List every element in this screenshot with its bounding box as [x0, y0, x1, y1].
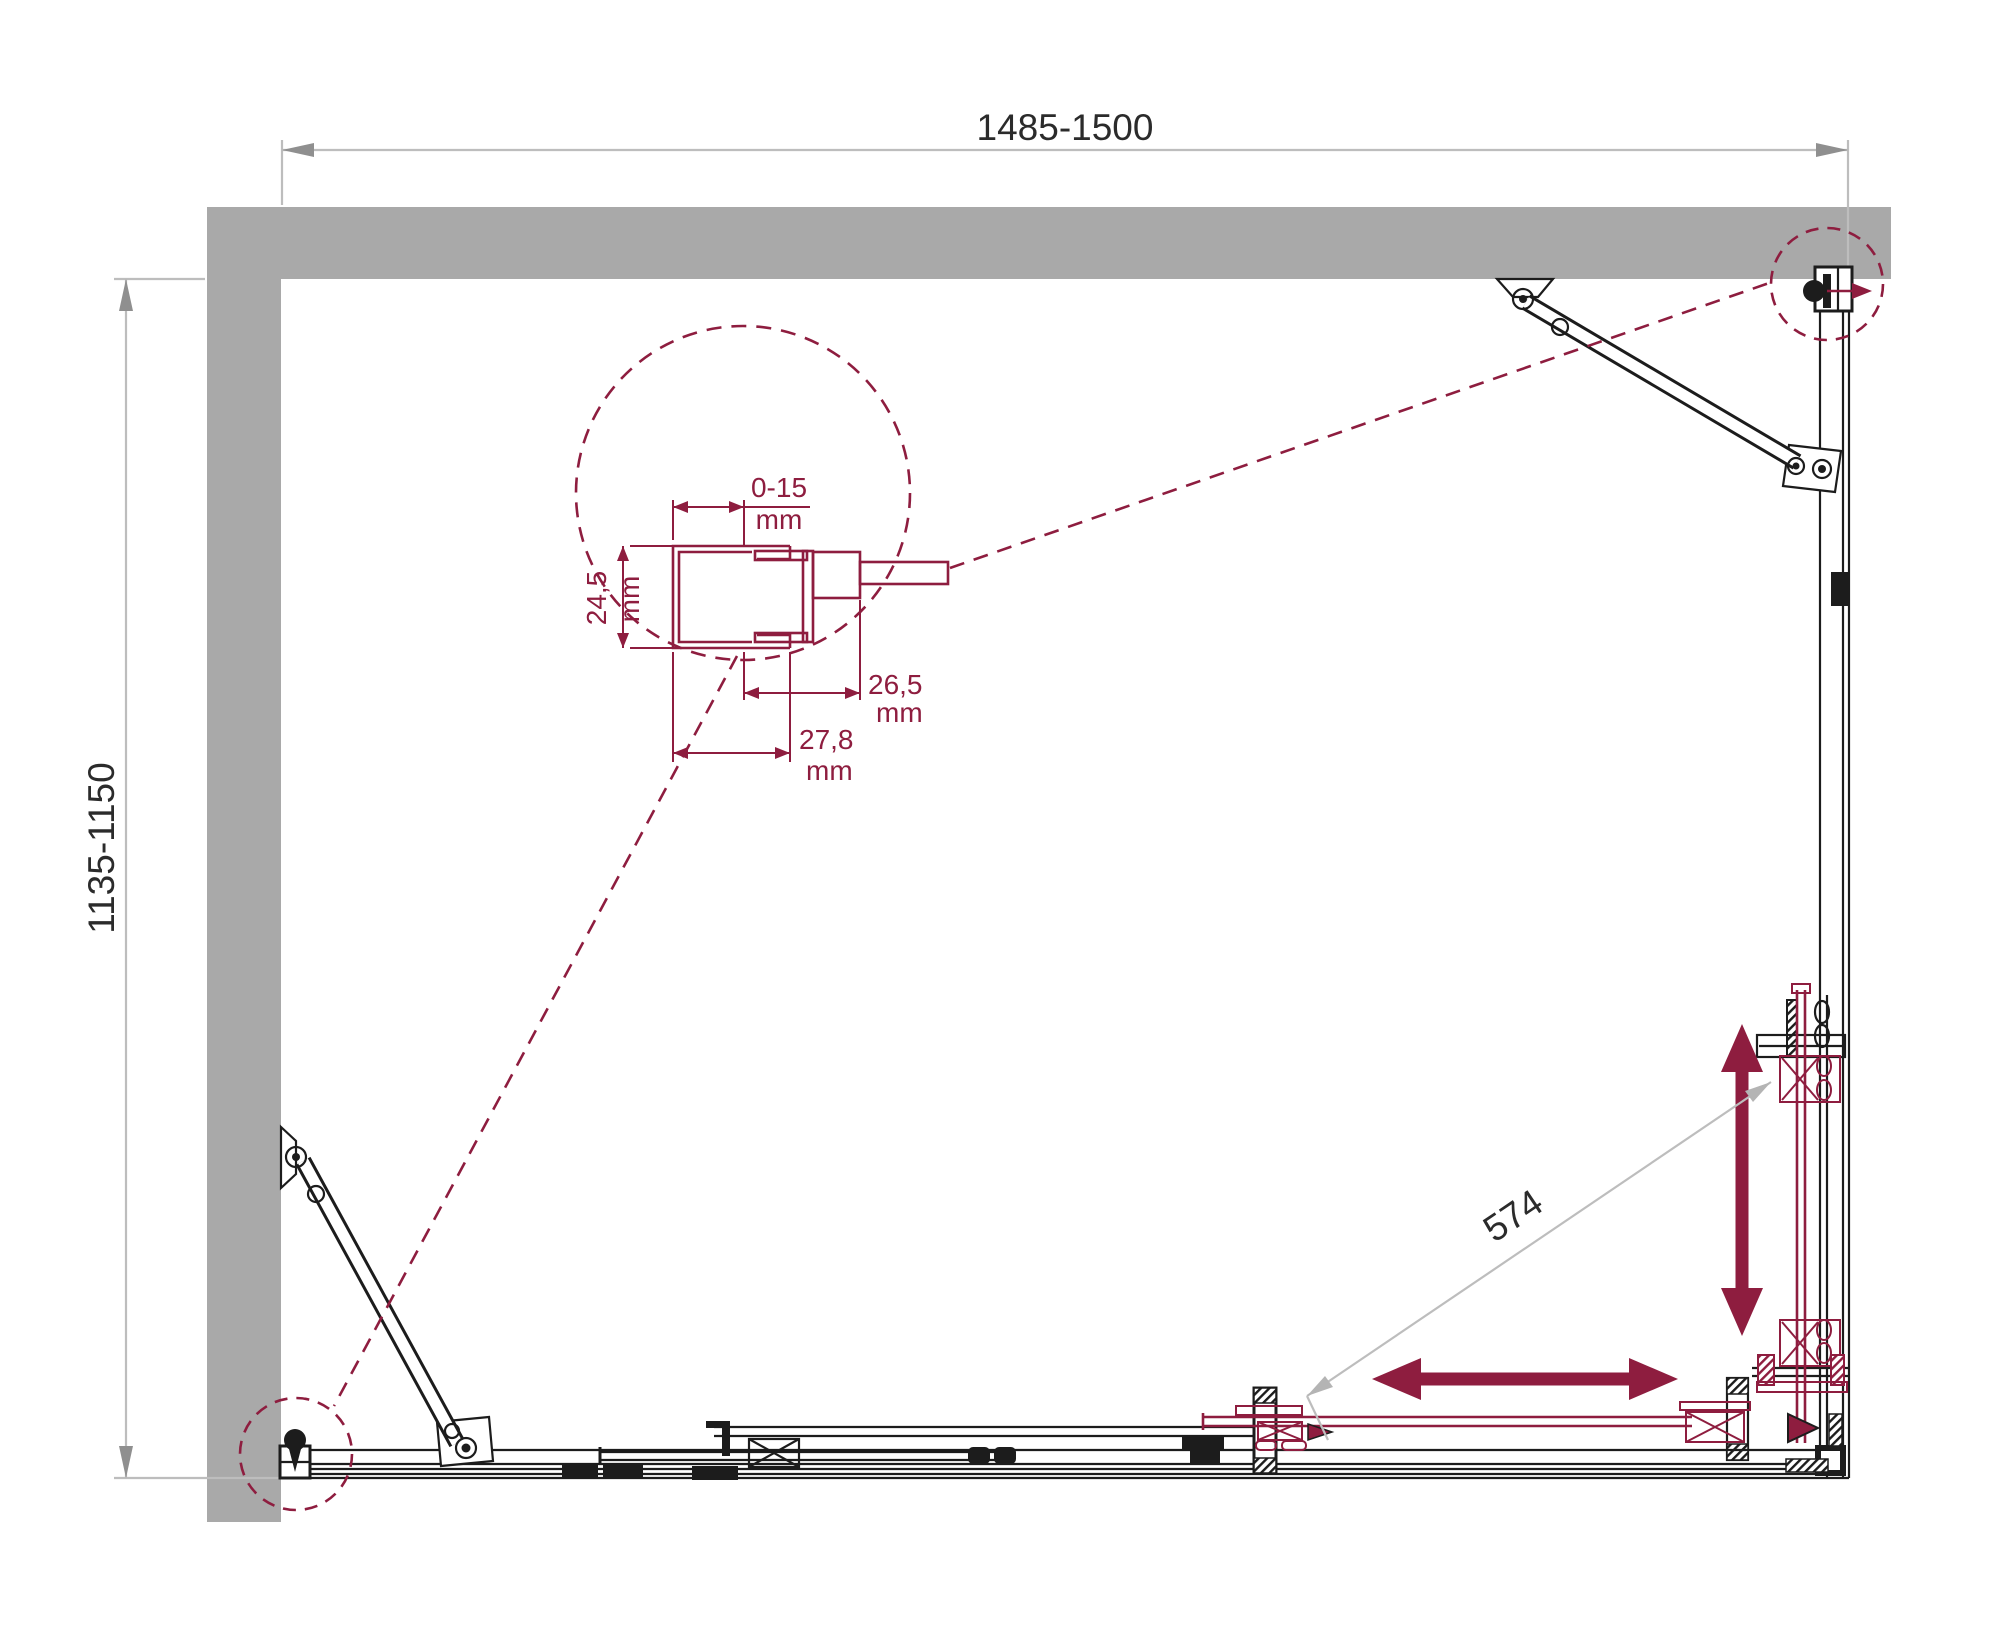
- door-end-bracket: [706, 1421, 730, 1428]
- main-carriage-hatch: [1254, 1388, 1276, 1403]
- roller-bar-black: [1787, 1000, 1797, 1056]
- direction-arrows: [1372, 1024, 1763, 1400]
- glass-clamp-right: [1831, 572, 1848, 606]
- corner-hatch-horizontal: [1786, 1459, 1828, 1472]
- detail-profile-depth-value: 24,5: [581, 571, 612, 626]
- detail-inner-box: [813, 552, 860, 598]
- maroon-door-guide-tip: [1788, 1414, 1818, 1442]
- width-dimension-label: 1485-1500: [977, 107, 1154, 148]
- wall-bracket-plate: [1497, 279, 1553, 297]
- shower-enclosure-plan-drawing: 1485-1500 1135-1150: [0, 0, 2000, 1631]
- maroon-guide-hatch: [1831, 1355, 1844, 1385]
- detail-glass-panel: [860, 562, 948, 584]
- maroon-carriage-foot: [1282, 1441, 1306, 1450]
- door-stop-bracket: [1190, 1450, 1220, 1463]
- diagonal-arrow-upper: [1745, 1082, 1771, 1102]
- bottom-panel-assembly: [280, 1388, 1849, 1480]
- detail-inner-width-unit: mm: [876, 697, 923, 728]
- maroon-door-cap: [1792, 984, 1810, 993]
- main-carriage-hatch: [1254, 1458, 1276, 1473]
- arm-screw-center: [1519, 295, 1527, 303]
- support-arm-inner: [303, 1161, 457, 1443]
- profile-fastener-knob: [284, 1429, 306, 1451]
- guide-post-hatch: [1727, 1378, 1748, 1394]
- top-wall: [207, 207, 1891, 279]
- detail-adjustment-value: 0-15: [751, 472, 807, 503]
- door-end-bracket: [722, 1428, 730, 1456]
- arm-screw-center: [292, 1153, 300, 1161]
- detail-profile-depth-unit: mm: [614, 576, 645, 623]
- detail-outer-width-unit: mm: [806, 755, 853, 786]
- door-stop-bracket: [1182, 1437, 1224, 1449]
- callout-leader-top: [950, 282, 1772, 568]
- track-clamp: [562, 1464, 598, 1477]
- adjustment-arrow-head: [1852, 283, 1872, 299]
- detail-dim-arrow: [744, 687, 759, 699]
- technical-drawing-page: 1485-1500 1135-1150: [0, 0, 2000, 1631]
- diagonal-dimension-line: [1307, 1082, 1771, 1396]
- arm-screw-center: [1818, 465, 1826, 473]
- detail-dim-arrow: [617, 633, 629, 648]
- detail-outer-width-value: 27,8: [799, 724, 854, 755]
- maroon-carriage-flange: [1680, 1402, 1750, 1410]
- depth-dimension-label: 1135-1150: [81, 762, 122, 933]
- profile-fastener-knob: [1803, 280, 1825, 302]
- detail-dim-arrow: [673, 501, 688, 513]
- callout-leader-bottom: [334, 656, 737, 1406]
- main-dimensions: 1485-1500 1135-1150: [81, 107, 1848, 1478]
- arm-screw-center: [462, 1444, 471, 1453]
- maroon-guide-hatch: [1758, 1355, 1774, 1385]
- horizontal-slide-arrow-head-left: [1372, 1358, 1421, 1400]
- detail-view: 0-15 mm 24,5 mm 26,5 mm 27,8 mm: [576, 326, 948, 786]
- detail-inner-width-value: 26,5: [868, 669, 923, 700]
- detail-adjustment-unit: mm: [756, 504, 803, 535]
- left-wall: [207, 279, 281, 1522]
- width-arrow-right: [1816, 143, 1848, 157]
- track-clamp: [692, 1466, 738, 1480]
- walls: [207, 207, 1891, 1522]
- detail-inner-plate: [803, 551, 813, 642]
- depth-arrow-top: [119, 279, 133, 311]
- guide-post-hatch: [1727, 1444, 1748, 1460]
- detail-dim-arrow: [729, 501, 744, 513]
- detail-dim-arrow: [775, 747, 790, 759]
- support-arm-inner: [1526, 302, 1797, 462]
- diagonal-dimension: 574: [1307, 1082, 1771, 1440]
- corner-hatch-vertical: [1829, 1414, 1842, 1446]
- detail-links: [240, 228, 1883, 1510]
- horizontal-slide-arrow-head-right: [1629, 1358, 1678, 1400]
- detail-dim-arrow: [617, 546, 629, 561]
- depth-arrow-bottom: [119, 1446, 133, 1478]
- width-arrow-left: [282, 143, 314, 157]
- panel-clamp: [968, 1447, 990, 1464]
- track-clamp: [603, 1464, 643, 1477]
- detail-dim-arrow: [845, 687, 860, 699]
- panel-clamp: [994, 1447, 1016, 1464]
- vertical-slide-arrow-head-down: [1721, 1288, 1763, 1336]
- diagonal-arrow-lower: [1307, 1376, 1333, 1396]
- arm-screw-center: [1793, 463, 1800, 470]
- support-arms: [281, 279, 1841, 1466]
- detail-outer-profile-inner-wall: [679, 552, 752, 642]
